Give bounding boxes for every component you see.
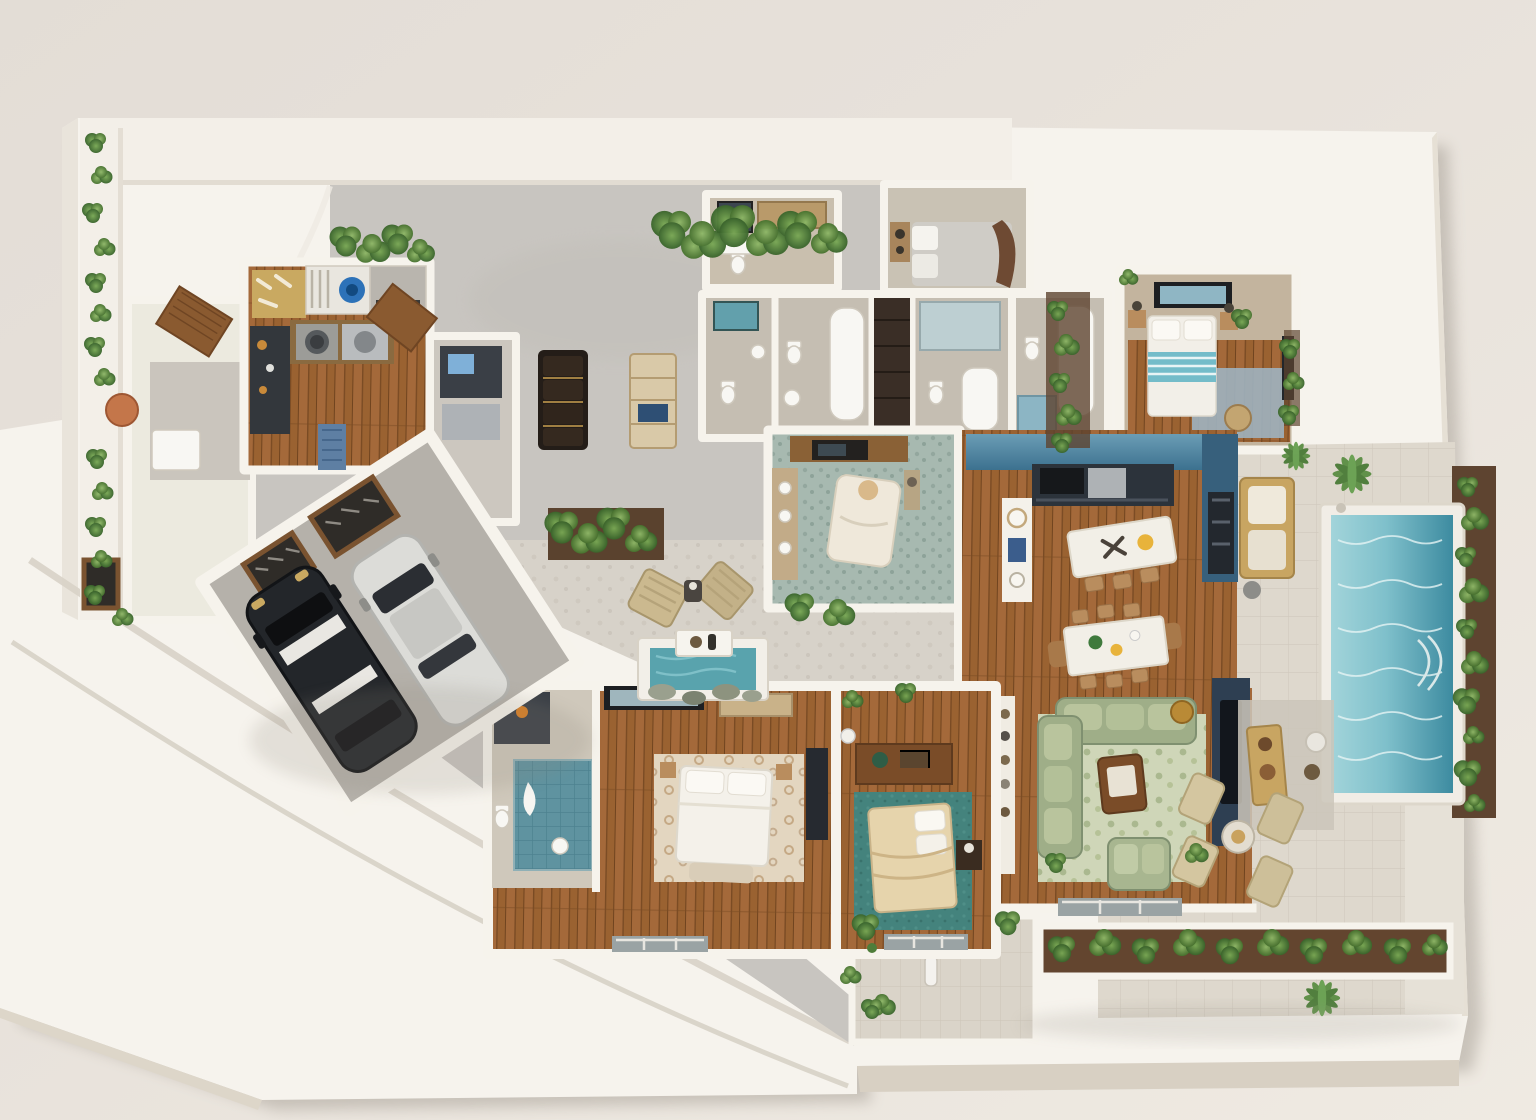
bedroom-tv bbox=[806, 748, 828, 840]
guest-bedroom: Guest bedroom — teal rug bbox=[836, 686, 996, 954]
walkway-sculpture bbox=[925, 956, 937, 986]
bed-teal bbox=[1148, 316, 1216, 416]
floor-plan-render: Driveway Inner courtyard with loungers a… bbox=[0, 0, 1536, 1120]
study-lounge: Study lounge with chaise bbox=[768, 430, 960, 608]
sliding-glass-door bbox=[1058, 898, 1182, 916]
floor-plan-canvas: Driveway Inner courtyard with loungers a… bbox=[0, 0, 1536, 1120]
chaise bbox=[826, 474, 901, 568]
hall-bench: Hallway bench seating bbox=[538, 350, 588, 450]
pouf bbox=[1225, 405, 1251, 431]
terracotta-stool bbox=[106, 394, 138, 426]
bed-bench bbox=[689, 862, 754, 883]
bedroom-teal: Bedroom — white bed with teal throw bbox=[1120, 270, 1296, 450]
bedroom-gray: Bedroom — gray bed, leather headboard bbox=[884, 184, 1030, 292]
shelf-screen bbox=[638, 404, 668, 422]
gold-bowl bbox=[1171, 701, 1193, 723]
hall-shelf: Hallway shelf cabinet bbox=[630, 354, 676, 448]
bar-counter bbox=[250, 326, 290, 434]
